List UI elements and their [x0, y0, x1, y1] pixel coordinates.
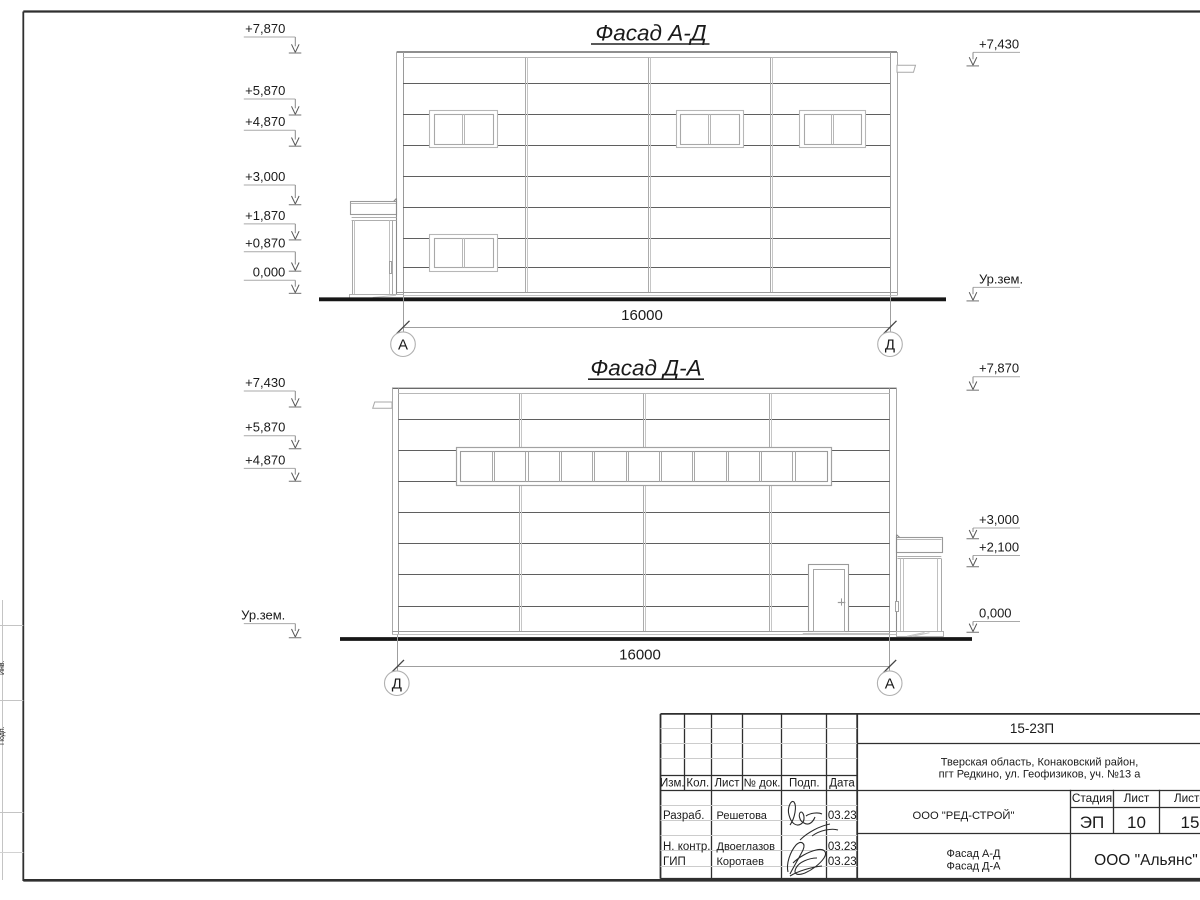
svg-text:Коротаев: Коротаев	[717, 856, 765, 868]
svg-text:+1,870: +1,870	[245, 208, 285, 223]
svg-text:Фасад А-Д: Фасад А-Д	[946, 848, 1001, 860]
svg-text:15: 15	[1181, 813, 1200, 832]
svg-text:+7,870: +7,870	[979, 361, 1019, 376]
svg-text:Изм.: Изм.	[660, 778, 685, 790]
svg-text:+0,870: +0,870	[245, 236, 285, 251]
svg-text:16000: 16000	[619, 647, 661, 664]
svg-text:Д: Д	[885, 337, 895, 354]
svg-text:Д: Д	[392, 676, 402, 693]
svg-text:Листов: Листов	[1174, 791, 1200, 805]
svg-text:+3,000: +3,000	[979, 512, 1019, 527]
svg-text:+7,870: +7,870	[245, 21, 285, 36]
svg-text:0,000: 0,000	[253, 264, 286, 279]
svg-text:10: 10	[1127, 813, 1146, 832]
svg-text:Дата: Дата	[829, 778, 855, 790]
svg-text:+4,870: +4,870	[245, 114, 285, 129]
svg-text:+7,430: +7,430	[245, 375, 285, 390]
svg-text:+2,100: +2,100	[979, 540, 1019, 555]
svg-text:ООО "Альянс": ООО "Альянс"	[1094, 852, 1198, 869]
svg-text:Инв.: Инв.	[0, 660, 6, 675]
svg-text:А: А	[398, 337, 408, 354]
svg-text:Стадия: Стадия	[1072, 791, 1112, 805]
svg-text:Фасад Д-А: Фасад Д-А	[946, 861, 1001, 873]
svg-text:ООО "РЕД-СТРОЙ": ООО "РЕД-СТРОЙ"	[913, 809, 1015, 822]
svg-text:+5,870: +5,870	[245, 83, 285, 98]
svg-text:А: А	[885, 676, 895, 693]
svg-text:ГИП: ГИП	[663, 856, 686, 868]
svg-text:Фасад Д-А: Фасад Д-А	[590, 356, 701, 381]
svg-text:ЭП: ЭП	[1080, 813, 1104, 832]
svg-text:Двоеглазов: Двоеглазов	[717, 841, 776, 853]
svg-text:Лист: Лист	[1124, 791, 1150, 805]
svg-text:пгт Редкино, ул. Геофизиков, у: пгт Редкино, ул. Геофизиков, уч. №13 а	[939, 769, 1142, 781]
svg-text:+5,870: +5,870	[245, 420, 285, 435]
svg-text:15-23П: 15-23П	[1010, 721, 1054, 736]
svg-text:+4,870: +4,870	[245, 452, 285, 467]
svg-text:03.23: 03.23	[828, 841, 857, 853]
svg-text:№ док.: № док.	[744, 778, 781, 790]
svg-text:Н. контр.: Н. контр.	[663, 841, 710, 853]
svg-text:Кол.: Кол.	[686, 778, 709, 790]
svg-text:Подп.: Подп.	[0, 726, 6, 745]
svg-text:03.23: 03.23	[828, 810, 857, 822]
svg-text:03.23: 03.23	[828, 856, 857, 868]
svg-text:+7,430: +7,430	[979, 36, 1019, 51]
svg-text:Подп.: Подп.	[789, 778, 820, 790]
svg-text:Ур.зем.: Ур.зем.	[979, 271, 1023, 286]
svg-text:0,000: 0,000	[979, 606, 1012, 621]
svg-text:Решетова: Решетова	[717, 810, 768, 822]
svg-text:+3,000: +3,000	[245, 169, 285, 184]
svg-text:Фасад А-Д: Фасад А-Д	[595, 21, 706, 46]
svg-text:Разраб.: Разраб.	[663, 810, 704, 822]
svg-text:Тверская область, Конаковский: Тверская область, Конаковский район,	[941, 756, 1139, 768]
svg-text:Лист: Лист	[715, 778, 741, 790]
svg-text:16000: 16000	[621, 307, 663, 324]
svg-text:Ур.зем.: Ур.зем.	[241, 608, 285, 623]
